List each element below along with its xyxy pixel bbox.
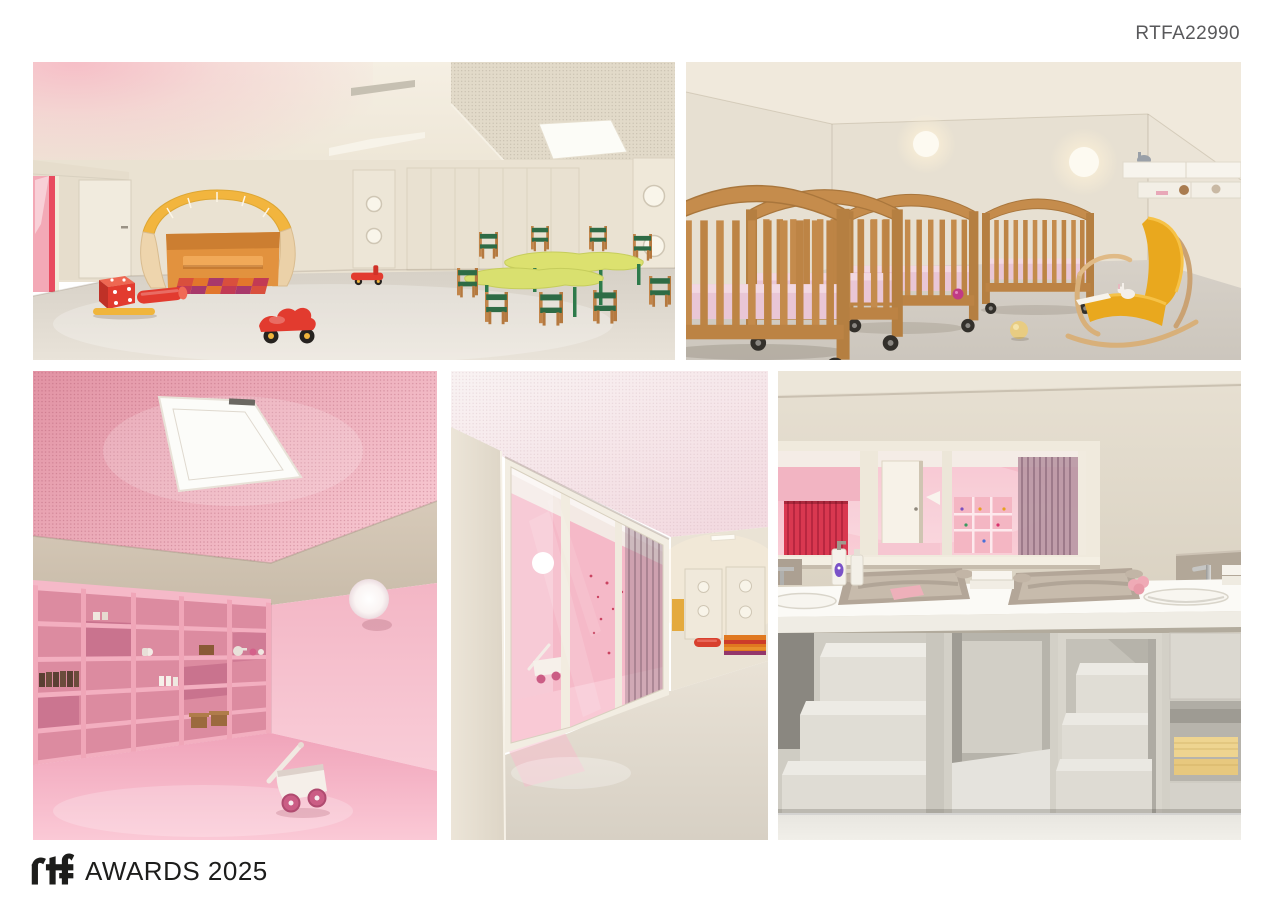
- play-mat: [175, 278, 269, 294]
- photo-playroom-image: [33, 62, 675, 360]
- corridor-pillar: [451, 427, 505, 840]
- yellow-towels: [1174, 737, 1238, 757]
- photo-changing-room: [778, 371, 1241, 840]
- rtf-awards-logo: AWARDS 2025: [30, 851, 268, 888]
- photo-sleeping-room-image: [686, 62, 1241, 360]
- red-window: [33, 176, 59, 292]
- wall-light-left: [896, 114, 956, 174]
- porthole-door-middle: [353, 170, 395, 268]
- open-cubby-middle: [952, 633, 1050, 813]
- sink-left: [778, 594, 836, 609]
- pullout-stairs-right: [1056, 633, 1162, 813]
- photo-corridor-image: [451, 371, 768, 840]
- ceiling-light: [711, 534, 735, 541]
- porthole-doors-background: [672, 567, 765, 641]
- photo-pink-room-image: [33, 371, 437, 840]
- submission-ref-code: RTFA22990: [1135, 23, 1240, 45]
- floor: [778, 815, 1241, 840]
- door-left: [79, 180, 131, 278]
- foam-dice: [99, 276, 135, 309]
- changing-pad-right: [1008, 568, 1143, 605]
- pink-shelves-through-window: [954, 497, 1012, 553]
- balance-board: [93, 308, 157, 320]
- skylight: [539, 120, 627, 159]
- interior-window: [778, 441, 1100, 569]
- drawer-and-towel-cubby: [1170, 633, 1241, 813]
- awards-logo-text: AWARDS 2025: [85, 858, 268, 888]
- pink-shelving-unit: [33, 580, 271, 765]
- under-counter-units: [778, 633, 1241, 816]
- rtf-logo-mark-icon: [30, 851, 76, 888]
- wall-light-right: [1050, 128, 1118, 196]
- photo-corridor: [451, 371, 768, 840]
- mauve-curtain-through-window: [1018, 457, 1078, 555]
- sheer-curtain: [625, 525, 663, 706]
- photo-changing-room-image: [778, 371, 1241, 840]
- photo-sleeping-room: [686, 62, 1241, 360]
- photo-playroom: [33, 62, 675, 360]
- photo-pink-room: [33, 371, 437, 840]
